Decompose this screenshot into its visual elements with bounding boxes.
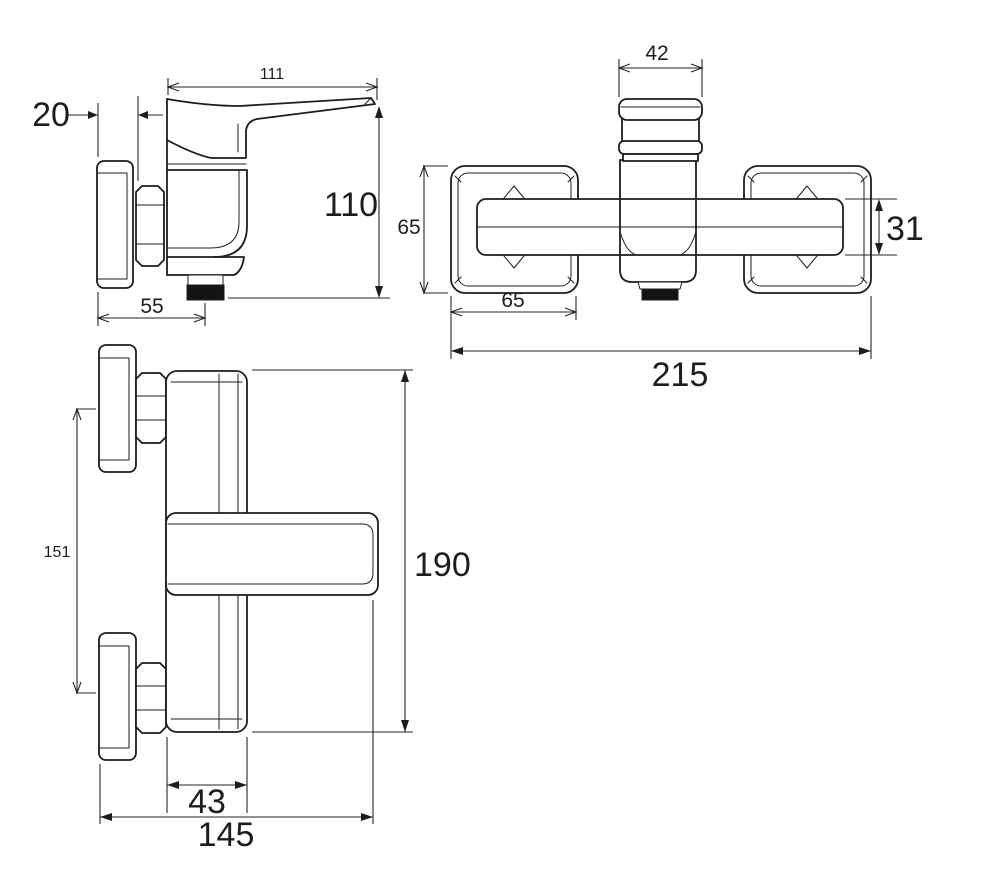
dim-label-190: 190 xyxy=(414,546,471,584)
wall-plate-top xyxy=(99,345,136,472)
hex-nut-bottom xyxy=(136,663,166,733)
dim-label-20: 20 xyxy=(32,96,70,134)
dim-label-215: 215 xyxy=(652,356,709,394)
dim-label-42: 42 xyxy=(645,42,668,65)
hex-nut-top xyxy=(136,373,166,443)
dim-label-110: 110 xyxy=(324,186,378,224)
technical-drawing-canvas: 111 20 110 55 xyxy=(0,0,993,873)
dim-label-145: 145 xyxy=(198,816,255,854)
aerator xyxy=(187,275,224,300)
hex-nut xyxy=(136,186,164,266)
dimension-110: 110 xyxy=(228,106,390,298)
side-view-spout: 111 20 110 55 xyxy=(32,66,390,326)
wall-plate-bottom xyxy=(99,633,136,760)
dim-label-65-height: 65 xyxy=(397,216,420,239)
side-view-mounted: 151 190 43 145 xyxy=(44,345,471,854)
dim-label-65-width: 65 xyxy=(501,289,524,312)
valve-housing xyxy=(166,513,378,595)
front-view: 42 65 65 31 215 xyxy=(397,42,924,394)
aerator-front xyxy=(638,282,682,300)
connection-bar xyxy=(477,199,843,255)
dimension-111: 111 xyxy=(168,66,377,100)
dimension-42: 42 xyxy=(619,42,702,97)
dimension-65-height: 65 xyxy=(397,166,448,293)
handle-front xyxy=(619,99,702,161)
dimension-151: 151 xyxy=(44,409,96,693)
dim-label-31: 31 xyxy=(886,210,924,248)
dim-label-55: 55 xyxy=(140,295,163,318)
technical-drawing-page: 111 20 110 55 xyxy=(0,0,993,873)
dimension-43: 43 xyxy=(167,737,247,821)
dim-label-151: 151 xyxy=(44,544,71,561)
dim-label-111: 111 xyxy=(260,66,284,83)
wall-plate xyxy=(97,161,133,288)
